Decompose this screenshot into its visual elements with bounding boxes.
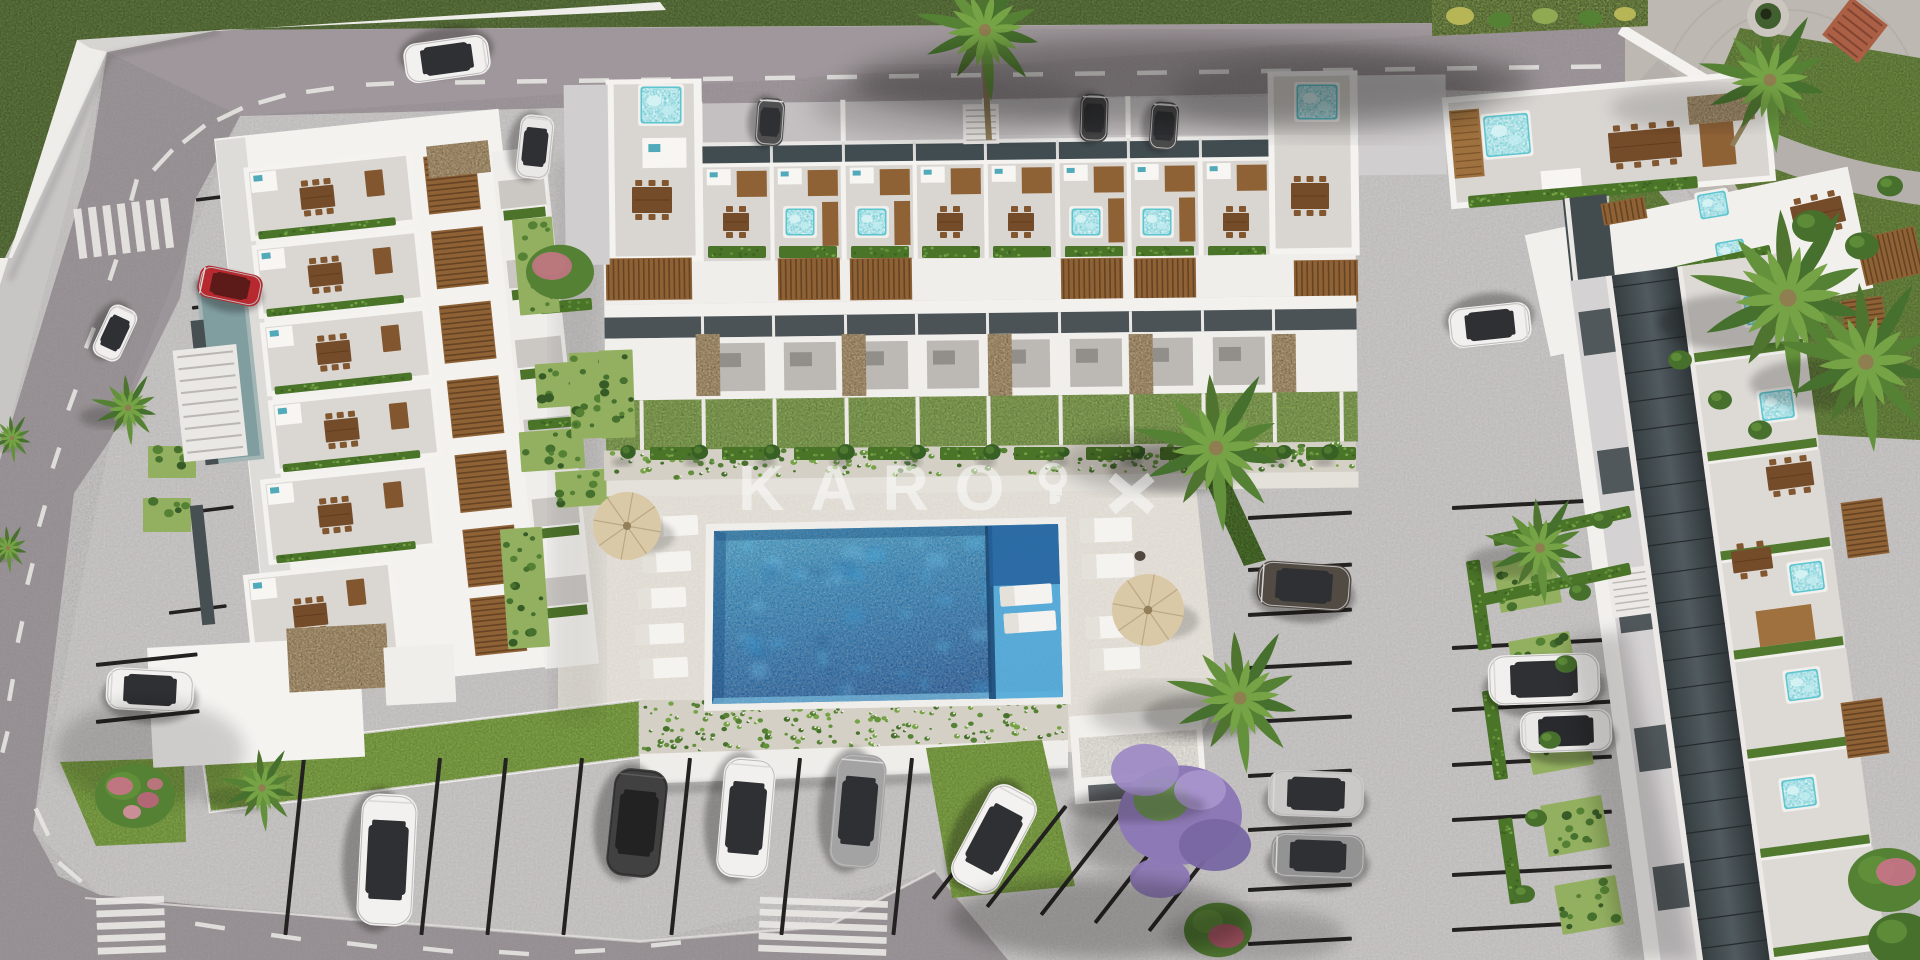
svg-text:KARO: KARO <box>738 452 1030 524</box>
